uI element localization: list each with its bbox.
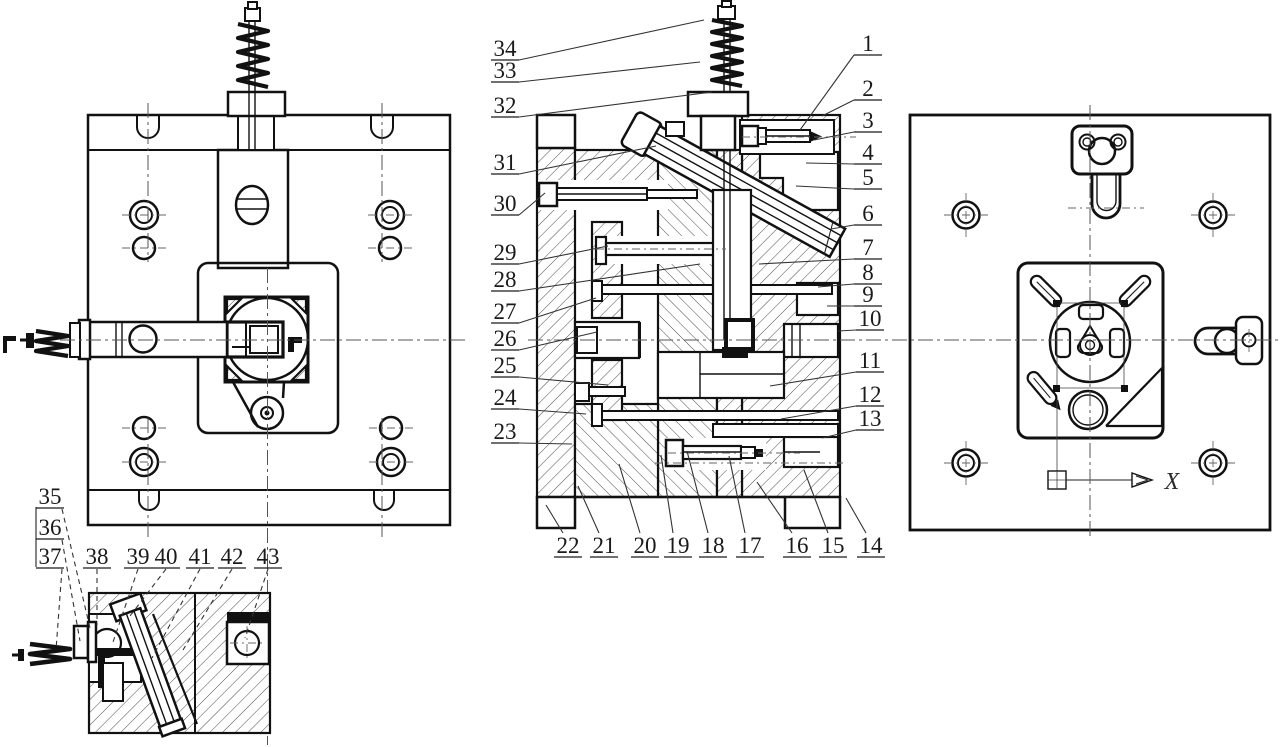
callout-33: 33 bbox=[491, 58, 700, 83]
view-arrow-icon bbox=[1132, 473, 1152, 487]
svg-text:27: 27 bbox=[494, 299, 517, 324]
svg-text:19: 19 bbox=[667, 533, 690, 558]
svg-text:3: 3 bbox=[862, 108, 874, 133]
svg-text:5: 5 bbox=[862, 165, 874, 190]
svg-text:39: 39 bbox=[127, 544, 150, 569]
wedge-outline bbox=[1106, 368, 1162, 426]
callout-34: 34 bbox=[491, 20, 704, 61]
center-spring-screw bbox=[712, 1, 742, 86]
svg-text:21: 21 bbox=[593, 533, 616, 558]
top-bracket bbox=[1068, 126, 1144, 218]
stop-rail bbox=[713, 424, 838, 437]
ejector-pin-upper bbox=[596, 236, 716, 264]
callout-10: 10 bbox=[838, 306, 884, 331]
axis-label-x: X bbox=[1164, 469, 1181, 495]
slide-spring bbox=[36, 331, 68, 356]
svg-text:11: 11 bbox=[859, 348, 881, 373]
drawing-canvas: X 343332313029282726252423123456789 bbox=[0, 0, 1280, 747]
svg-text:40: 40 bbox=[155, 544, 178, 569]
detail-spring bbox=[30, 644, 70, 664]
svg-text:20: 20 bbox=[634, 533, 657, 558]
svg-text:25: 25 bbox=[494, 353, 517, 378]
mold-assembly-drawing: X 343332313029282726252423123456789 bbox=[0, 0, 1280, 747]
svg-text:24: 24 bbox=[494, 385, 518, 410]
bottom-screw bbox=[666, 438, 766, 470]
svg-text:26: 26 bbox=[494, 326, 517, 351]
right-foot bbox=[785, 497, 840, 528]
cavity-insert bbox=[658, 352, 784, 398]
svg-text:10: 10 bbox=[859, 306, 882, 331]
svg-text:22: 22 bbox=[557, 533, 580, 558]
svg-text:16: 16 bbox=[786, 533, 809, 558]
svg-text:9: 9 bbox=[862, 282, 874, 307]
svg-text:2: 2 bbox=[862, 76, 874, 101]
svg-text:4: 4 bbox=[862, 140, 874, 165]
svg-text:35: 35 bbox=[39, 484, 62, 509]
direction-marker: X bbox=[1048, 400, 1181, 495]
svg-text:13: 13 bbox=[859, 406, 882, 431]
svg-text:15: 15 bbox=[822, 533, 845, 558]
svg-text:6: 6 bbox=[862, 201, 874, 226]
callout-32: 32 bbox=[491, 92, 712, 118]
svg-text:36: 36 bbox=[39, 515, 62, 540]
svg-text:37: 37 bbox=[39, 544, 62, 569]
svg-text:18: 18 bbox=[702, 533, 725, 558]
svg-text:17: 17 bbox=[739, 533, 762, 558]
svg-text:42: 42 bbox=[221, 544, 244, 569]
left-foot bbox=[537, 497, 575, 528]
svg-text:7: 7 bbox=[862, 235, 874, 260]
spring-end-marker bbox=[3, 336, 16, 353]
right-plan-view: X bbox=[910, 105, 1270, 540]
svg-text:41: 41 bbox=[189, 544, 212, 569]
callout-14: 14 bbox=[846, 498, 885, 558]
detail-view bbox=[12, 507, 270, 738]
svg-text:23: 23 bbox=[494, 419, 517, 444]
svg-text:31: 31 bbox=[494, 150, 517, 175]
callout-37: 37 bbox=[36, 544, 64, 650]
svg-text:1: 1 bbox=[862, 31, 874, 56]
callout-36: 36 bbox=[36, 515, 80, 641]
svg-text:12: 12 bbox=[859, 382, 882, 407]
svg-text:30: 30 bbox=[494, 191, 517, 216]
svg-text:32: 32 bbox=[494, 93, 517, 118]
svg-text:14: 14 bbox=[860, 533, 884, 558]
svg-text:43: 43 bbox=[257, 544, 280, 569]
svg-text:28: 28 bbox=[494, 267, 517, 292]
svg-text:33: 33 bbox=[494, 58, 517, 83]
svg-text:38: 38 bbox=[86, 544, 109, 569]
svg-text:29: 29 bbox=[494, 240, 517, 265]
